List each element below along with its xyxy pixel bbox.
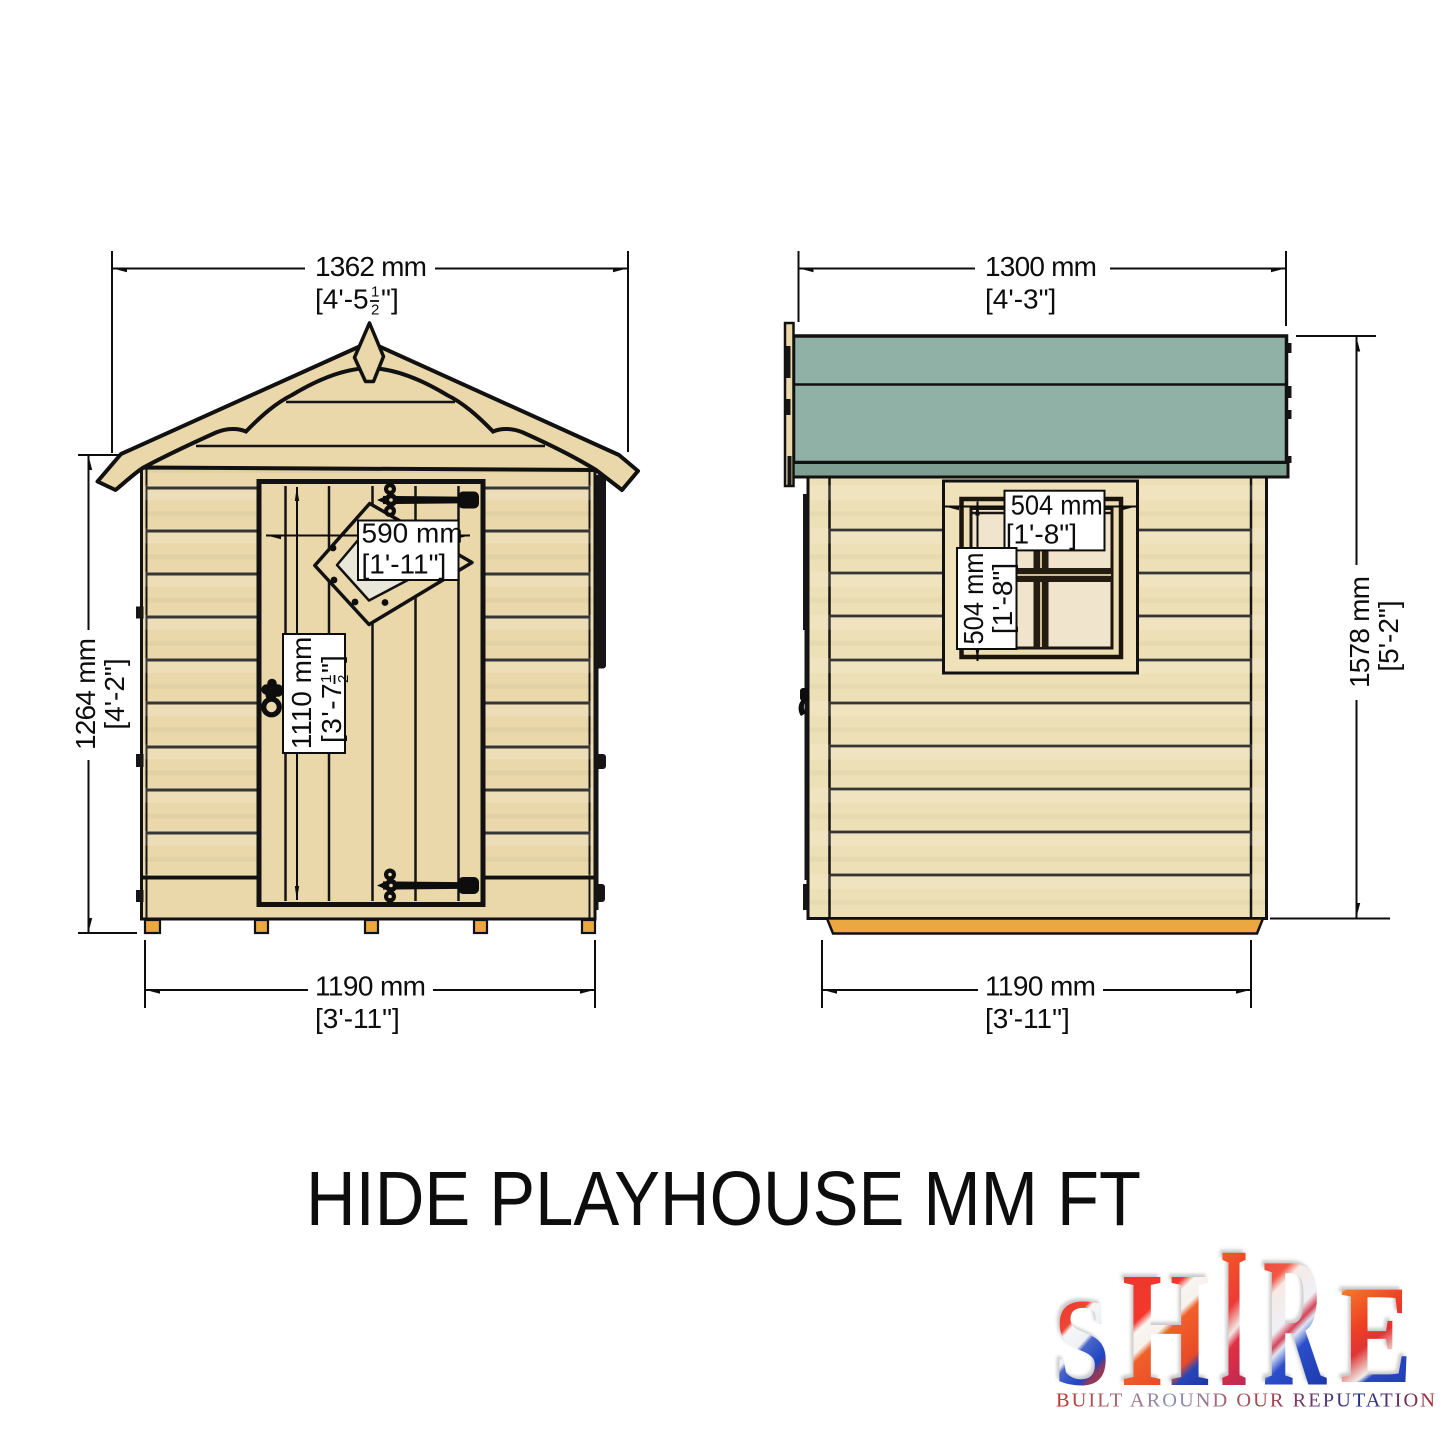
svg-text:[4'-5: [4'-5 — [315, 284, 369, 315]
svg-text:[4'-2"]: [4'-2"] — [99, 658, 130, 729]
svg-text:[3'-11"]: [3'-11"] — [315, 1003, 400, 1034]
svg-text:1578 mm: 1578 mm — [1344, 576, 1375, 688]
svg-text:1300 mm: 1300 mm — [985, 251, 1097, 282]
svg-text:"]: "] — [316, 655, 347, 673]
svg-text:1: 1 — [371, 284, 379, 301]
svg-text:2: 2 — [335, 675, 352, 683]
svg-text:[5'-2"]: [5'-2"] — [1373, 600, 1404, 671]
svg-text:[3'-11"]: [3'-11"] — [985, 1003, 1070, 1034]
svg-text:[3'-7: [3'-7 — [316, 682, 347, 743]
svg-text:504 mm: 504 mm — [958, 553, 989, 645]
svg-text:1264 mm: 1264 mm — [70, 638, 101, 750]
svg-text:1190 mm: 1190 mm — [985, 971, 1096, 1002]
svg-text:1362 mm: 1362 mm — [315, 251, 427, 282]
svg-text:[1'-8"]: [1'-8"] — [1006, 519, 1077, 550]
svg-text:1110 mm: 1110 mm — [286, 637, 317, 750]
svg-text:[1'-11"]: [1'-11"] — [362, 549, 447, 580]
svg-text:"]: "] — [381, 284, 399, 315]
svg-text:1: 1 — [318, 675, 335, 683]
svg-text:HIDE PLAYHOUSE MM FT: HIDE PLAYHOUSE MM FT — [306, 1156, 1141, 1242]
svg-text:504 mm: 504 mm — [1011, 489, 1103, 520]
svg-text:2: 2 — [371, 302, 379, 319]
svg-text:590 mm: 590 mm — [362, 518, 463, 549]
svg-text:1190 mm: 1190 mm — [315, 971, 426, 1002]
svg-text:BUILT AROUND OUR REPUTATION: BUILT AROUND OUR REPUTATION — [1056, 1390, 1437, 1412]
svg-text:[4'-3"]: [4'-3"] — [985, 284, 1056, 315]
svg-text:[1'-8"]: [1'-8"] — [987, 563, 1018, 634]
